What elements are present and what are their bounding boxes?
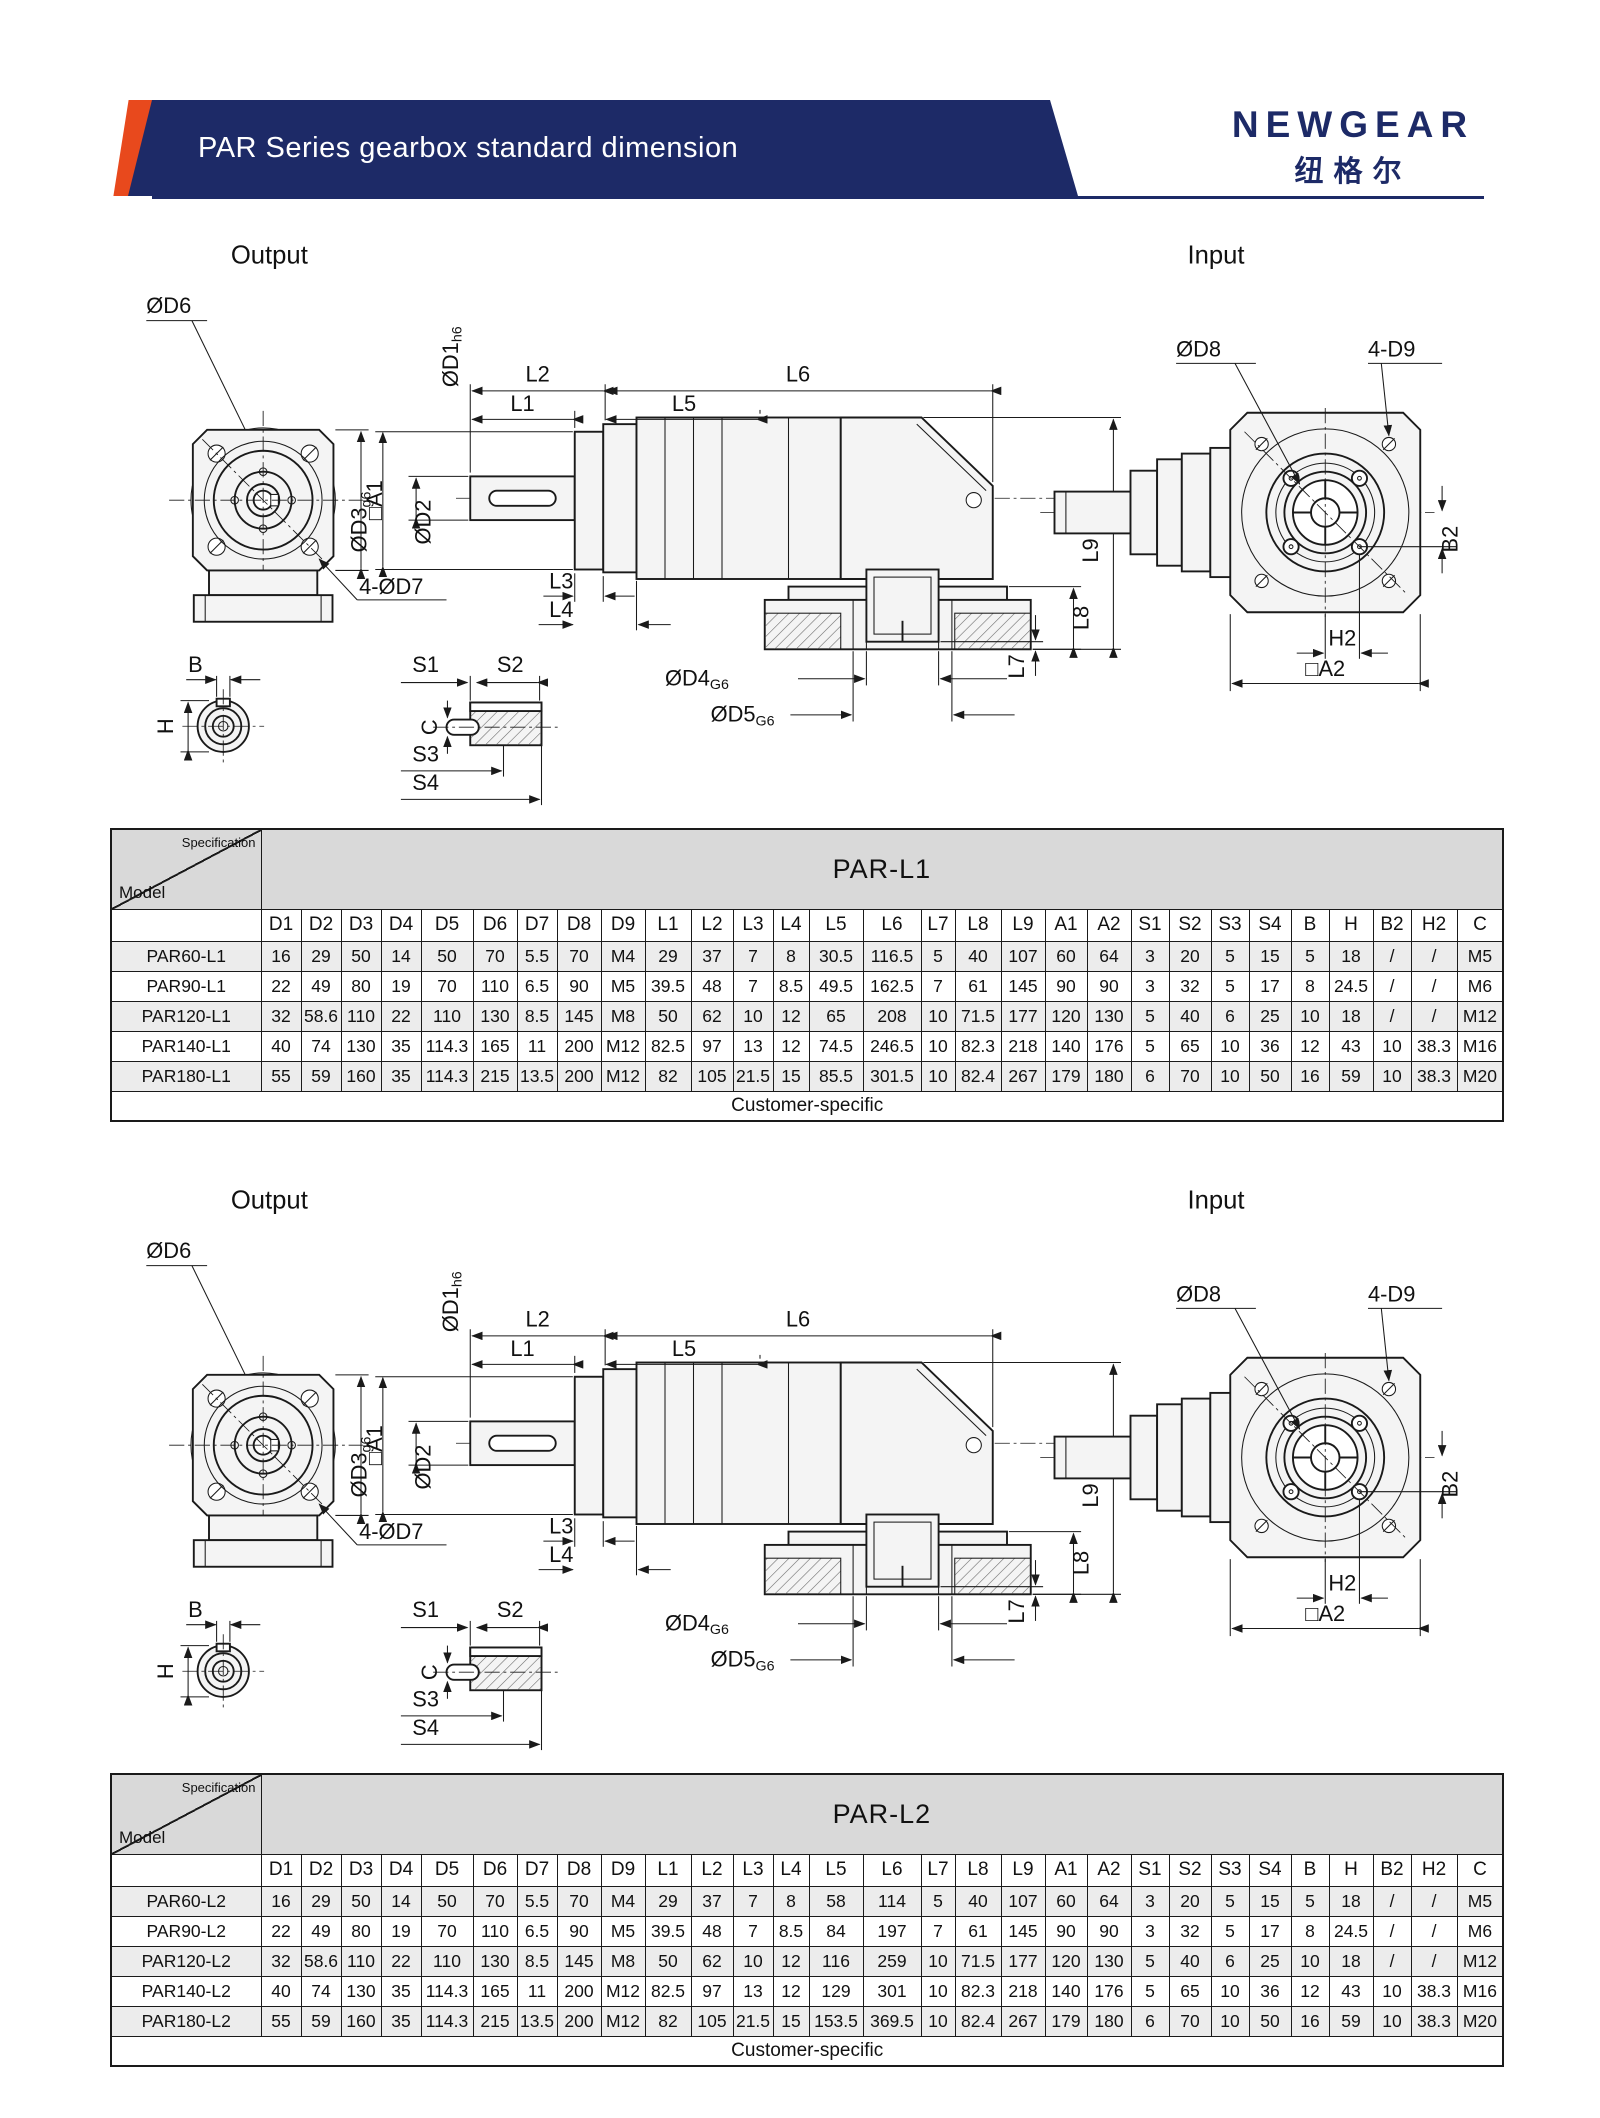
- value-cell: 8.5: [517, 1001, 557, 1031]
- value-cell: 10: [1291, 1946, 1329, 1976]
- value-cell: 3: [1131, 941, 1169, 971]
- value-cell: M12: [601, 1976, 645, 2006]
- value-cell: 8: [1291, 971, 1329, 1001]
- corner-specification: Specification: [182, 1780, 256, 1795]
- value-cell: 153.5: [809, 2006, 863, 2036]
- value-cell: 18: [1329, 1001, 1373, 1031]
- value-cell: 130: [473, 1946, 517, 1976]
- value-cell: 32: [261, 1946, 301, 1976]
- column-header: C: [1457, 1854, 1503, 1886]
- column-header: D9: [601, 909, 645, 941]
- value-cell: 10: [1211, 2006, 1249, 2036]
- value-cell: 5: [1131, 1031, 1169, 1061]
- value-cell: /: [1411, 1886, 1457, 1916]
- value-cell: 36: [1249, 1031, 1291, 1061]
- value-cell: 105: [691, 1061, 733, 1091]
- value-cell: 5: [921, 1886, 955, 1916]
- value-cell: 165: [473, 1976, 517, 2006]
- value-cell: 110: [341, 1001, 381, 1031]
- value-cell: 16: [261, 941, 301, 971]
- value-cell: 179: [1045, 1061, 1087, 1091]
- value-cell: 70: [1169, 1061, 1211, 1091]
- pedestal-base: [194, 1540, 333, 1567]
- column-header: D4: [381, 1854, 421, 1886]
- table-area-l1: SpecificationModelPAR-L1D1D2D3D4D5D6D7D8…: [110, 828, 1600, 1122]
- value-cell: 37: [691, 941, 733, 971]
- value-cell: 160: [341, 1061, 381, 1091]
- value-cell: M16: [1457, 1031, 1503, 1061]
- value-cell: 3: [1131, 1886, 1169, 1916]
- value-cell: 15: [1249, 941, 1291, 971]
- pedestal-neck: [209, 570, 317, 595]
- value-cell: 39.5: [645, 971, 691, 1001]
- table-title: PAR-L1: [261, 829, 1503, 909]
- value-cell: 130: [1087, 1001, 1131, 1031]
- shaft-end-view: B H: [153, 652, 264, 765]
- value-cell: 71.5: [955, 1001, 1001, 1031]
- column-header: D8: [557, 1854, 601, 1886]
- column-header: D3: [341, 909, 381, 941]
- value-cell: 19: [381, 971, 421, 1001]
- value-cell: M20: [1457, 1061, 1503, 1091]
- value-cell: 10: [1373, 1031, 1411, 1061]
- value-cell: M6: [1457, 1916, 1503, 1946]
- value-cell: /: [1411, 971, 1457, 1001]
- value-cell: 90: [557, 971, 601, 1001]
- value-cell: 71.5: [955, 1946, 1001, 1976]
- column-header: L6: [863, 909, 921, 941]
- value-cell: 10: [921, 1001, 955, 1031]
- value-cell: 25: [1249, 1001, 1291, 1031]
- dimension-table: SpecificationModelPAR-L2D1D2D3D4D5D6D7D8…: [110, 1773, 1504, 2067]
- value-cell: 110: [473, 971, 517, 1001]
- value-cell: 5: [1211, 971, 1249, 1001]
- column-header: L3: [733, 1854, 773, 1886]
- value-cell: 5: [921, 941, 955, 971]
- page-header: PAR Series gearbox standard dimension NE…: [0, 0, 1600, 215]
- header-rule: [152, 196, 1484, 199]
- value-cell: 50: [341, 1886, 381, 1916]
- value-cell: 7: [921, 971, 955, 1001]
- value-cell: 6.5: [517, 971, 557, 1001]
- value-cell: 10: [921, 1946, 955, 1976]
- table-row: PAR90-L122498019701106.590M539.54878.549…: [111, 971, 1503, 1001]
- value-cell: 12: [773, 1976, 809, 2006]
- value-cell: 15: [1249, 1886, 1291, 1916]
- value-cell: 97: [691, 1976, 733, 2006]
- value-cell: 82: [645, 1061, 691, 1091]
- value-cell: 32: [261, 1001, 301, 1031]
- table-footer: Customer-specific: [111, 2036, 1503, 2066]
- value-cell: 22: [381, 1946, 421, 1976]
- value-cell: 5: [1131, 1001, 1169, 1031]
- value-cell: 107: [1001, 1886, 1045, 1916]
- value-cell: 12: [1291, 1031, 1329, 1061]
- value-cell: 8: [773, 1886, 809, 1916]
- value-cell: 61: [955, 971, 1001, 1001]
- dim-label-c: C: [417, 1664, 442, 1680]
- value-cell: 20: [1169, 1886, 1211, 1916]
- value-cell: 50: [1249, 2006, 1291, 2036]
- value-cell: 107: [1001, 941, 1045, 971]
- value-cell: 8: [1291, 1916, 1329, 1946]
- pedestal-base: [194, 595, 333, 622]
- value-cell: 60: [1045, 941, 1087, 971]
- brand-name-chinese: 纽格尔: [1218, 148, 1488, 190]
- value-cell: M12: [601, 1061, 645, 1091]
- value-cell: 10: [1373, 1061, 1411, 1091]
- dim-label-od2: ØD2: [410, 500, 435, 545]
- dim-label-od3: ØD3g6: [347, 1437, 375, 1498]
- value-cell: 35: [381, 1061, 421, 1091]
- value-cell: 60: [1045, 1886, 1087, 1916]
- dim-label-a2: □A2: [1305, 656, 1345, 681]
- dim-label-s3: S3: [412, 1686, 439, 1711]
- value-cell: 38.3: [1411, 1976, 1457, 2006]
- value-cell: 40: [261, 1031, 301, 1061]
- dim-label-od3: ØD3g6: [347, 492, 375, 553]
- value-cell: 180: [1087, 2006, 1131, 2036]
- value-cell: 82.5: [645, 1031, 691, 1061]
- technical-drawing: Output ØD6 □A1 4-ØD7: [103, 1182, 1493, 1752]
- value-cell: 10: [921, 1976, 955, 2006]
- value-cell: 17: [1249, 1916, 1291, 1946]
- value-cell: 215: [473, 1061, 517, 1091]
- value-cell: 7: [921, 1916, 955, 1946]
- input-view: Input ØD8 4-D9: [1040, 1187, 1462, 1637]
- dim-label-l1: L1: [510, 391, 534, 416]
- value-cell: 130: [341, 1976, 381, 2006]
- value-cell: 218: [1001, 1976, 1045, 2006]
- value-cell: 13.5: [517, 1061, 557, 1091]
- value-cell: 43: [1329, 1976, 1373, 2006]
- dim-label-b: B: [188, 1597, 203, 1622]
- value-cell: /: [1373, 1001, 1411, 1031]
- column-header: S3: [1211, 1854, 1249, 1886]
- value-cell: M12: [1457, 1001, 1503, 1031]
- column-header: L8: [955, 1854, 1001, 1886]
- value-cell: 29: [645, 1886, 691, 1916]
- column-header: B2: [1373, 1854, 1411, 1886]
- column-header: A2: [1087, 1854, 1131, 1886]
- value-cell: 5: [1211, 1916, 1249, 1946]
- column-header: D6: [473, 909, 517, 941]
- value-cell: 5: [1211, 941, 1249, 971]
- model-cell: PAR140-L2: [111, 1976, 261, 2006]
- table-footer: Customer-specific: [111, 1091, 1503, 1121]
- value-cell: 80: [341, 971, 381, 1001]
- value-cell: 110: [341, 1946, 381, 1976]
- dim-label-h2: H2: [1328, 626, 1356, 651]
- value-cell: 218: [1001, 1031, 1045, 1061]
- column-header: S1: [1131, 1854, 1169, 1886]
- value-cell: 49: [301, 971, 341, 1001]
- value-cell: 90: [557, 1916, 601, 1946]
- spec-model-corner: SpecificationModel: [111, 829, 261, 909]
- column-header: L4: [773, 1854, 809, 1886]
- value-cell: 145: [557, 1001, 601, 1031]
- model-cell: PAR180-L2: [111, 2006, 261, 2036]
- value-cell: 11: [517, 1976, 557, 2006]
- blank-header-cell: [111, 909, 261, 941]
- value-cell: M4: [601, 1886, 645, 1916]
- value-cell: 145: [557, 1946, 601, 1976]
- value-cell: M6: [1457, 971, 1503, 1001]
- value-cell: /: [1373, 1916, 1411, 1946]
- dim-label-h: H: [153, 718, 178, 734]
- column-header: S4: [1249, 1854, 1291, 1886]
- value-cell: 85.5: [809, 1061, 863, 1091]
- dim-label-s3: S3: [412, 741, 439, 766]
- value-cell: 32: [1169, 1916, 1211, 1946]
- page: PAR Series gearbox standard dimension NE…: [0, 0, 1600, 2118]
- dim-label-l6: L6: [786, 361, 810, 386]
- value-cell: 29: [645, 941, 691, 971]
- value-cell: 10: [733, 1001, 773, 1031]
- value-cell: 58: [809, 1886, 863, 1916]
- value-cell: 21.5: [733, 1061, 773, 1091]
- blank-header-cell: [111, 1854, 261, 1886]
- value-cell: 116: [809, 1946, 863, 1976]
- dim-label-od5: ØD5G6: [711, 1647, 775, 1675]
- dim-label-l3: L3: [549, 1514, 573, 1539]
- value-cell: 3: [1131, 971, 1169, 1001]
- shaft-keyway-slot: [489, 1436, 556, 1451]
- value-cell: 58.6: [301, 1001, 341, 1031]
- dim-label-b2: B2: [1437, 1471, 1462, 1498]
- input-title: Input: [1188, 1187, 1245, 1215]
- value-cell: 11: [517, 1031, 557, 1061]
- value-cell: 90: [1087, 971, 1131, 1001]
- value-cell: 97: [691, 1031, 733, 1061]
- value-cell: /: [1411, 1001, 1457, 1031]
- column-header: D1: [261, 1854, 301, 1886]
- value-cell: 177: [1001, 1001, 1045, 1031]
- dim-label-b2: B2: [1437, 526, 1462, 553]
- dim-label-od6: ØD6: [146, 1238, 191, 1263]
- value-cell: 12: [773, 1001, 809, 1031]
- column-header: D5: [421, 1854, 473, 1886]
- value-cell: 267: [1001, 2006, 1045, 2036]
- column-header: S3: [1211, 909, 1249, 941]
- value-cell: 50: [645, 1001, 691, 1031]
- value-cell: 165: [473, 1031, 517, 1061]
- value-cell: 6: [1211, 1001, 1249, 1031]
- model-cell: PAR60-L1: [111, 941, 261, 971]
- column-header: S2: [1169, 909, 1211, 941]
- value-cell: 110: [473, 1916, 517, 1946]
- value-cell: 82.3: [955, 1031, 1001, 1061]
- table-row: PAR180-L2555916035114.321513.5200M128210…: [111, 2006, 1503, 2036]
- value-cell: 38.3: [1411, 2006, 1457, 2036]
- column-header: D7: [517, 1854, 557, 1886]
- dim-label-od7: 4-ØD7: [359, 1519, 423, 1544]
- value-cell: 10: [1373, 1976, 1411, 2006]
- model-cell: PAR120-L2: [111, 1946, 261, 1976]
- column-header: A2: [1087, 909, 1131, 941]
- dim-label-l5: L5: [672, 391, 696, 416]
- column-header: H2: [1411, 1854, 1457, 1886]
- value-cell: 22: [381, 1001, 421, 1031]
- value-cell: M8: [601, 1001, 645, 1031]
- value-cell: 18: [1329, 1886, 1373, 1916]
- value-cell: 58.6: [301, 1946, 341, 1976]
- column-header: D2: [301, 1854, 341, 1886]
- model-cell: PAR90-L2: [111, 1916, 261, 1946]
- value-cell: 61: [955, 1916, 1001, 1946]
- value-cell: 105: [691, 2006, 733, 2036]
- pedestal-neck: [209, 1515, 317, 1540]
- column-header: L1: [645, 909, 691, 941]
- value-cell: 16: [1291, 2006, 1329, 2036]
- value-cell: 10: [921, 1061, 955, 1091]
- column-header: L7: [921, 909, 955, 941]
- dim-label-od5: ØD5G6: [711, 702, 775, 730]
- value-cell: 15: [773, 2006, 809, 2036]
- value-cell: 114.3: [421, 2006, 473, 2036]
- dim-label-l7: L7: [1004, 1599, 1029, 1623]
- value-cell: 65: [1169, 1031, 1211, 1061]
- value-cell: 259: [863, 1946, 921, 1976]
- value-cell: 30.5: [809, 941, 863, 971]
- value-cell: 179: [1045, 2006, 1087, 2036]
- value-cell: 40: [955, 1886, 1001, 1916]
- table-row: PAR140-L2407413035114.316511200M1282.597…: [111, 1976, 1503, 2006]
- value-cell: 16: [1291, 1061, 1329, 1091]
- table-row: PAR140-L1407413035114.316511200M1282.597…: [111, 1031, 1503, 1061]
- value-cell: 70: [473, 1886, 517, 1916]
- dim-label-s2: S2: [497, 652, 524, 677]
- value-cell: 369.5: [863, 2006, 921, 2036]
- value-cell: 74: [301, 1976, 341, 2006]
- dim-label-l4: L4: [549, 1542, 573, 1567]
- value-cell: 6: [1131, 2006, 1169, 2036]
- value-cell: 55: [261, 1061, 301, 1091]
- dim-label-s1: S1: [412, 652, 439, 677]
- value-cell: 177: [1001, 1946, 1045, 1976]
- front-flange-plate: [575, 1377, 604, 1515]
- value-cell: 200: [557, 1976, 601, 2006]
- dim-label-l9: L9: [1078, 538, 1103, 562]
- column-header: L9: [1001, 1854, 1045, 1886]
- dim-label-h: H: [153, 1663, 178, 1679]
- value-cell: 140: [1045, 1031, 1087, 1061]
- value-cell: 24.5: [1329, 1916, 1373, 1946]
- column-header: S1: [1131, 909, 1169, 941]
- value-cell: /: [1411, 941, 1457, 971]
- value-cell: M12: [601, 2006, 645, 2036]
- column-header: A1: [1045, 1854, 1087, 1886]
- value-cell: 6.5: [517, 1916, 557, 1946]
- dim-label-l2: L2: [526, 1306, 550, 1331]
- value-cell: 114.3: [421, 1061, 473, 1091]
- value-cell: 13.5: [517, 2006, 557, 2036]
- value-cell: 120: [1045, 1001, 1087, 1031]
- value-cell: 116.5: [863, 941, 921, 971]
- technical-drawing: Output ØD6 □A1 4-ØD7: [103, 237, 1493, 807]
- value-cell: 82: [645, 2006, 691, 2036]
- value-cell: 13: [733, 1031, 773, 1061]
- value-cell: 20: [1169, 941, 1211, 971]
- value-cell: 12: [773, 1946, 809, 1976]
- value-cell: 65: [1169, 1976, 1211, 2006]
- brand-name: NEWGEAR: [1218, 104, 1488, 146]
- value-cell: 114.3: [421, 1976, 473, 2006]
- section-par-l1: Output ØD6 □A1 4-ØD7: [0, 237, 1600, 1122]
- model-cell: PAR140-L1: [111, 1031, 261, 1061]
- value-cell: 6: [1131, 1061, 1169, 1091]
- dim-label-l6: L6: [786, 1306, 810, 1331]
- value-cell: 59: [1329, 2006, 1373, 2036]
- value-cell: /: [1411, 1946, 1457, 1976]
- dim-label-s4: S4: [412, 1715, 439, 1740]
- input-title: Input: [1188, 242, 1245, 270]
- value-cell: 59: [1329, 1061, 1373, 1091]
- drawing-area-l2: Output ØD6 □A1 4-ØD7: [103, 1182, 1600, 1757]
- dim-label-l8: L8: [1069, 606, 1094, 630]
- dim-label-od6: ØD6: [146, 293, 191, 318]
- value-cell: 84: [809, 1916, 863, 1946]
- value-cell: 50: [645, 1946, 691, 1976]
- value-cell: M12: [1457, 1946, 1503, 1976]
- value-cell: 14: [381, 1886, 421, 1916]
- value-cell: 48: [691, 971, 733, 1001]
- column-header: S4: [1249, 909, 1291, 941]
- table-row: PAR90-L222498019701106.590M539.54878.584…: [111, 1916, 1503, 1946]
- front-flange-plate: [575, 432, 604, 570]
- model-cell: PAR60-L2: [111, 1886, 261, 1916]
- value-cell: 5: [1131, 1946, 1169, 1976]
- value-cell: 10: [1211, 1031, 1249, 1061]
- value-cell: /: [1373, 1946, 1411, 1976]
- value-cell: M5: [601, 971, 645, 1001]
- value-cell: 215: [473, 2006, 517, 2036]
- dim-label-a2: □A2: [1305, 1601, 1345, 1626]
- value-cell: 8: [773, 941, 809, 971]
- title-banner: PAR Series gearbox standard dimension: [128, 100, 1078, 196]
- value-cell: 35: [381, 2006, 421, 2036]
- value-cell: 59: [301, 2006, 341, 2036]
- value-cell: 49: [301, 1916, 341, 1946]
- column-header: D1: [261, 909, 301, 941]
- column-header: S2: [1169, 1854, 1211, 1886]
- value-cell: 10: [733, 1946, 773, 1976]
- shaft-keyway-slot: [489, 491, 556, 506]
- value-cell: 3: [1131, 1916, 1169, 1946]
- side-section-view: L2 L6 L1 L5 ØD1h6 ØD3g6 ØD2 L3 L4 ØD4G6: [347, 326, 1121, 729]
- value-cell: 50: [421, 941, 473, 971]
- column-header: D9: [601, 1854, 645, 1886]
- dim-label-od8: ØD8: [1176, 337, 1221, 362]
- output-title: Output: [231, 242, 308, 270]
- dim-label-l2: L2: [526, 361, 550, 386]
- value-cell: 180: [1087, 1061, 1131, 1091]
- gear-housing: [637, 1363, 841, 1525]
- value-cell: 59: [301, 1061, 341, 1091]
- side-section-view: L2 L6 L1 L5 ØD1h6 ØD3g6 ØD2 L3 L4 ØD4G6: [347, 1271, 1121, 1674]
- value-cell: 12: [1291, 1976, 1329, 2006]
- value-cell: 10: [1291, 1001, 1329, 1031]
- column-header: L9: [1001, 909, 1045, 941]
- value-cell: 22: [261, 971, 301, 1001]
- value-cell: 37: [691, 1886, 733, 1916]
- value-cell: M16: [1457, 1976, 1503, 2006]
- value-cell: 200: [557, 1061, 601, 1091]
- value-cell: 70: [557, 941, 601, 971]
- column-header: D3: [341, 1854, 381, 1886]
- value-cell: 267: [1001, 1061, 1045, 1091]
- value-cell: 8.5: [517, 1946, 557, 1976]
